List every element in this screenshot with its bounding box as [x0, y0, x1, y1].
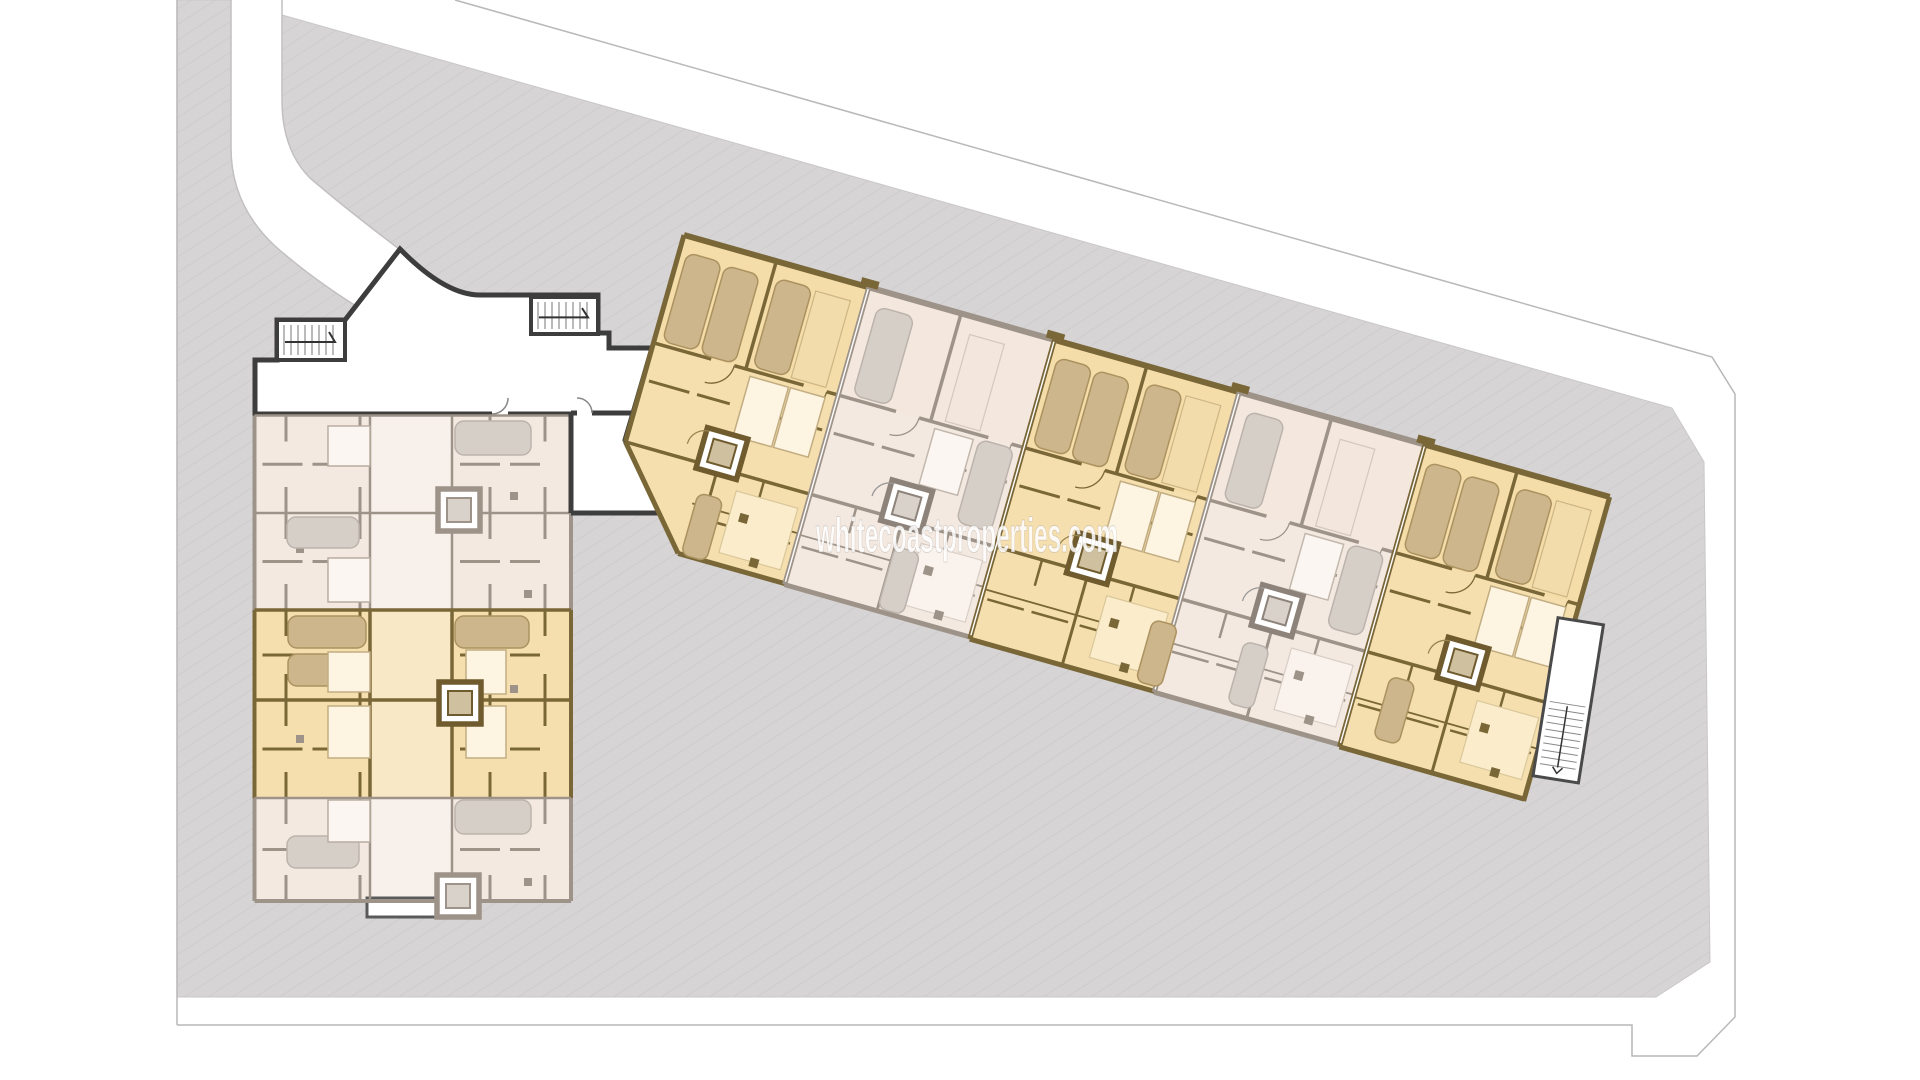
svg-text:whitecoastproperties.com: whitecoastproperties.com [816, 509, 1118, 563]
